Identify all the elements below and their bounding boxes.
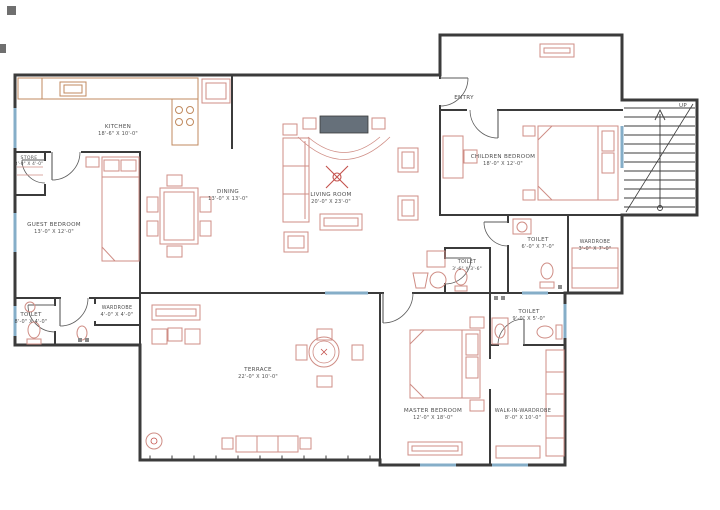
side-table — [283, 124, 297, 135]
walk-in-wardrobe-dims: 8'-0" X 10'-0" — [505, 415, 541, 421]
doors — [22, 78, 524, 345]
toilet-master-dims: 9'-0" X 5'-0" — [513, 316, 546, 322]
dining-set — [147, 175, 211, 257]
door-arc — [498, 319, 524, 345]
guest-bedroom-furniture — [86, 157, 139, 261]
dining-dims: 13'-0" X 13'-0" — [208, 196, 248, 202]
door-toilet-children — [484, 222, 508, 246]
children-bedroom-label: CHILDREN BEDROOM — [471, 154, 536, 160]
armchair — [284, 232, 308, 252]
toilet-master-label: TOILET — [517, 309, 540, 315]
toilet-children-label: TOILET — [526, 237, 549, 243]
living-room-dims: 20'-0" X 23'-0" — [311, 199, 351, 205]
floor-drain-icon — [558, 285, 562, 289]
toilet-left-dims: 8'-0" X 4'-0" — [15, 319, 48, 325]
walk-in-wardrobe-fixtures — [496, 350, 564, 458]
toilet-left-label: TOILET — [19, 312, 42, 318]
store-shelves — [17, 167, 43, 175]
stair-direction-arrow-icon — [655, 110, 665, 208]
door-arc — [383, 293, 413, 323]
entry-console-table — [540, 44, 574, 57]
outdoor-sofa — [152, 305, 200, 320]
wc-icon — [77, 326, 87, 340]
pillows — [466, 334, 478, 378]
washbasin-icon — [25, 302, 35, 312]
kitchen-counter — [18, 78, 198, 99]
floor-plan-canvas: KITCHEN 18'-6" X 10'-0" STORE 8'-0" X 4'… — [0, 0, 720, 510]
basin-counter — [492, 318, 508, 344]
terrace-label: TERRACE — [243, 367, 272, 373]
store-label: STORE — [21, 155, 38, 161]
master-bedroom-furniture — [408, 317, 484, 455]
terrace-furniture — [146, 305, 370, 460]
refrigerator-icon — [202, 79, 230, 103]
door-master-bedroom — [383, 293, 413, 323]
coffee-table — [320, 214, 362, 230]
wardrobe-children-label: WARDROBE — [580, 239, 611, 245]
toilet-mid-dims: 3'-6" X 3'-6" — [452, 266, 482, 272]
kitchen-dims: 18'-6" X 10'-0" — [98, 131, 138, 137]
wc-tank — [27, 339, 41, 344]
room-labels: KITCHEN 18'-6" X 10'-0" STORE 8'-0" X 4'… — [15, 95, 688, 421]
tv-unit-icon — [320, 116, 368, 133]
mirror-icon — [430, 272, 446, 288]
plant-pot-center — [151, 438, 157, 444]
side-tables — [470, 317, 484, 411]
entry-label: ENTRY — [454, 95, 474, 101]
floor-plan-page: KITCHEN 18'-6" X 10'-0" STORE 8'-0" X 4'… — [0, 0, 720, 510]
wc-tank — [455, 286, 467, 291]
media-wall-arcs — [298, 137, 390, 160]
bed — [102, 157, 139, 261]
bed — [410, 330, 480, 398]
door-toilet-master — [498, 319, 524, 345]
door-arc — [60, 298, 88, 326]
store-dims: 8'-0" X 4'-0" — [15, 161, 44, 167]
toilet-children-fixtures — [513, 219, 618, 289]
door-arc — [52, 152, 80, 180]
dining-label: DINING — [217, 189, 239, 195]
walk-in-wardrobe-label: WALK-IN-WARDROBE — [495, 408, 551, 414]
pillows — [104, 160, 136, 171]
stove-burners-icon — [176, 107, 194, 126]
bench — [236, 436, 298, 452]
floor-drain-icon — [85, 338, 89, 342]
wc-tank — [556, 325, 562, 339]
floor-drain-icon — [78, 338, 82, 342]
children-bedroom-furniture — [443, 126, 618, 200]
armchair — [398, 148, 418, 172]
door-entry — [440, 78, 468, 106]
washbasin-icon — [495, 324, 505, 338]
sofa — [283, 138, 309, 222]
ceiling-fan-icon — [326, 166, 348, 188]
stair-break-line — [626, 104, 693, 212]
terrace-dims: 22'-0" X 10'-0" — [238, 374, 278, 380]
wc-tank — [540, 282, 554, 288]
staircase — [624, 104, 695, 212]
guest-bedroom-label: GUEST BEDROOM — [27, 222, 81, 228]
plant-pot-icon — [146, 433, 162, 449]
side-tables — [523, 126, 535, 200]
master-bedroom-dims: 12'-0" X 18'-0" — [413, 415, 453, 421]
wardrobe-lower-unit — [496, 446, 540, 458]
kitchen-sink-icon — [60, 82, 86, 96]
guest-bedroom-dims: 13'-0" X 12'-0" — [34, 229, 74, 235]
washbasin-icon — [517, 222, 527, 232]
wardrobe-children-dims: 3'-0" X 7'-0" — [579, 246, 612, 252]
wc-icon — [537, 326, 553, 338]
children-bedroom-dims: 18'-0" X 12'-0" — [483, 161, 523, 167]
wardrobe-left-label: WARDROBE — [102, 305, 133, 311]
floor-drain-icon — [501, 296, 505, 300]
armchair — [398, 196, 418, 220]
dining-chairs — [147, 175, 211, 257]
wardrobe-shelving — [546, 350, 564, 456]
washbasin-icon — [413, 273, 428, 288]
corner-markers — [0, 6, 16, 53]
bed — [538, 126, 618, 200]
door-children-bedroom — [470, 110, 498, 138]
vanity-cabinet — [427, 251, 445, 267]
door-guest-lobby — [60, 298, 88, 326]
dresser — [408, 442, 462, 455]
marker-square — [7, 6, 16, 15]
door-arc — [470, 110, 498, 138]
table-plant-icon — [321, 349, 327, 355]
wardrobe-unit — [572, 248, 618, 288]
living-room-label: LIVING ROOM — [310, 192, 351, 198]
pillows — [602, 131, 614, 173]
door-arc — [440, 78, 468, 106]
outdoor-chairs — [152, 329, 200, 344]
side-table — [86, 157, 99, 167]
door-guest-bedroom — [52, 152, 80, 180]
toilet-mid-label: TOILET — [457, 259, 477, 265]
study-desk — [443, 136, 463, 178]
master-bedroom-label: MASTER BEDROOM — [404, 408, 462, 414]
up-label: UP — [679, 103, 687, 109]
wc-icon — [541, 263, 553, 279]
door-arc — [484, 222, 508, 246]
wardrobe-left-dims: 4'-0" X 4'-0" — [101, 312, 134, 318]
outdoor-side-table — [168, 328, 182, 341]
dining-table — [160, 188, 198, 244]
toilet-children-dims: 6'-0" X 7'-0" — [522, 244, 555, 250]
kitchen-label: KITCHEN — [105, 124, 131, 130]
floor-drain-icon — [494, 296, 498, 300]
marker-square — [0, 44, 6, 53]
